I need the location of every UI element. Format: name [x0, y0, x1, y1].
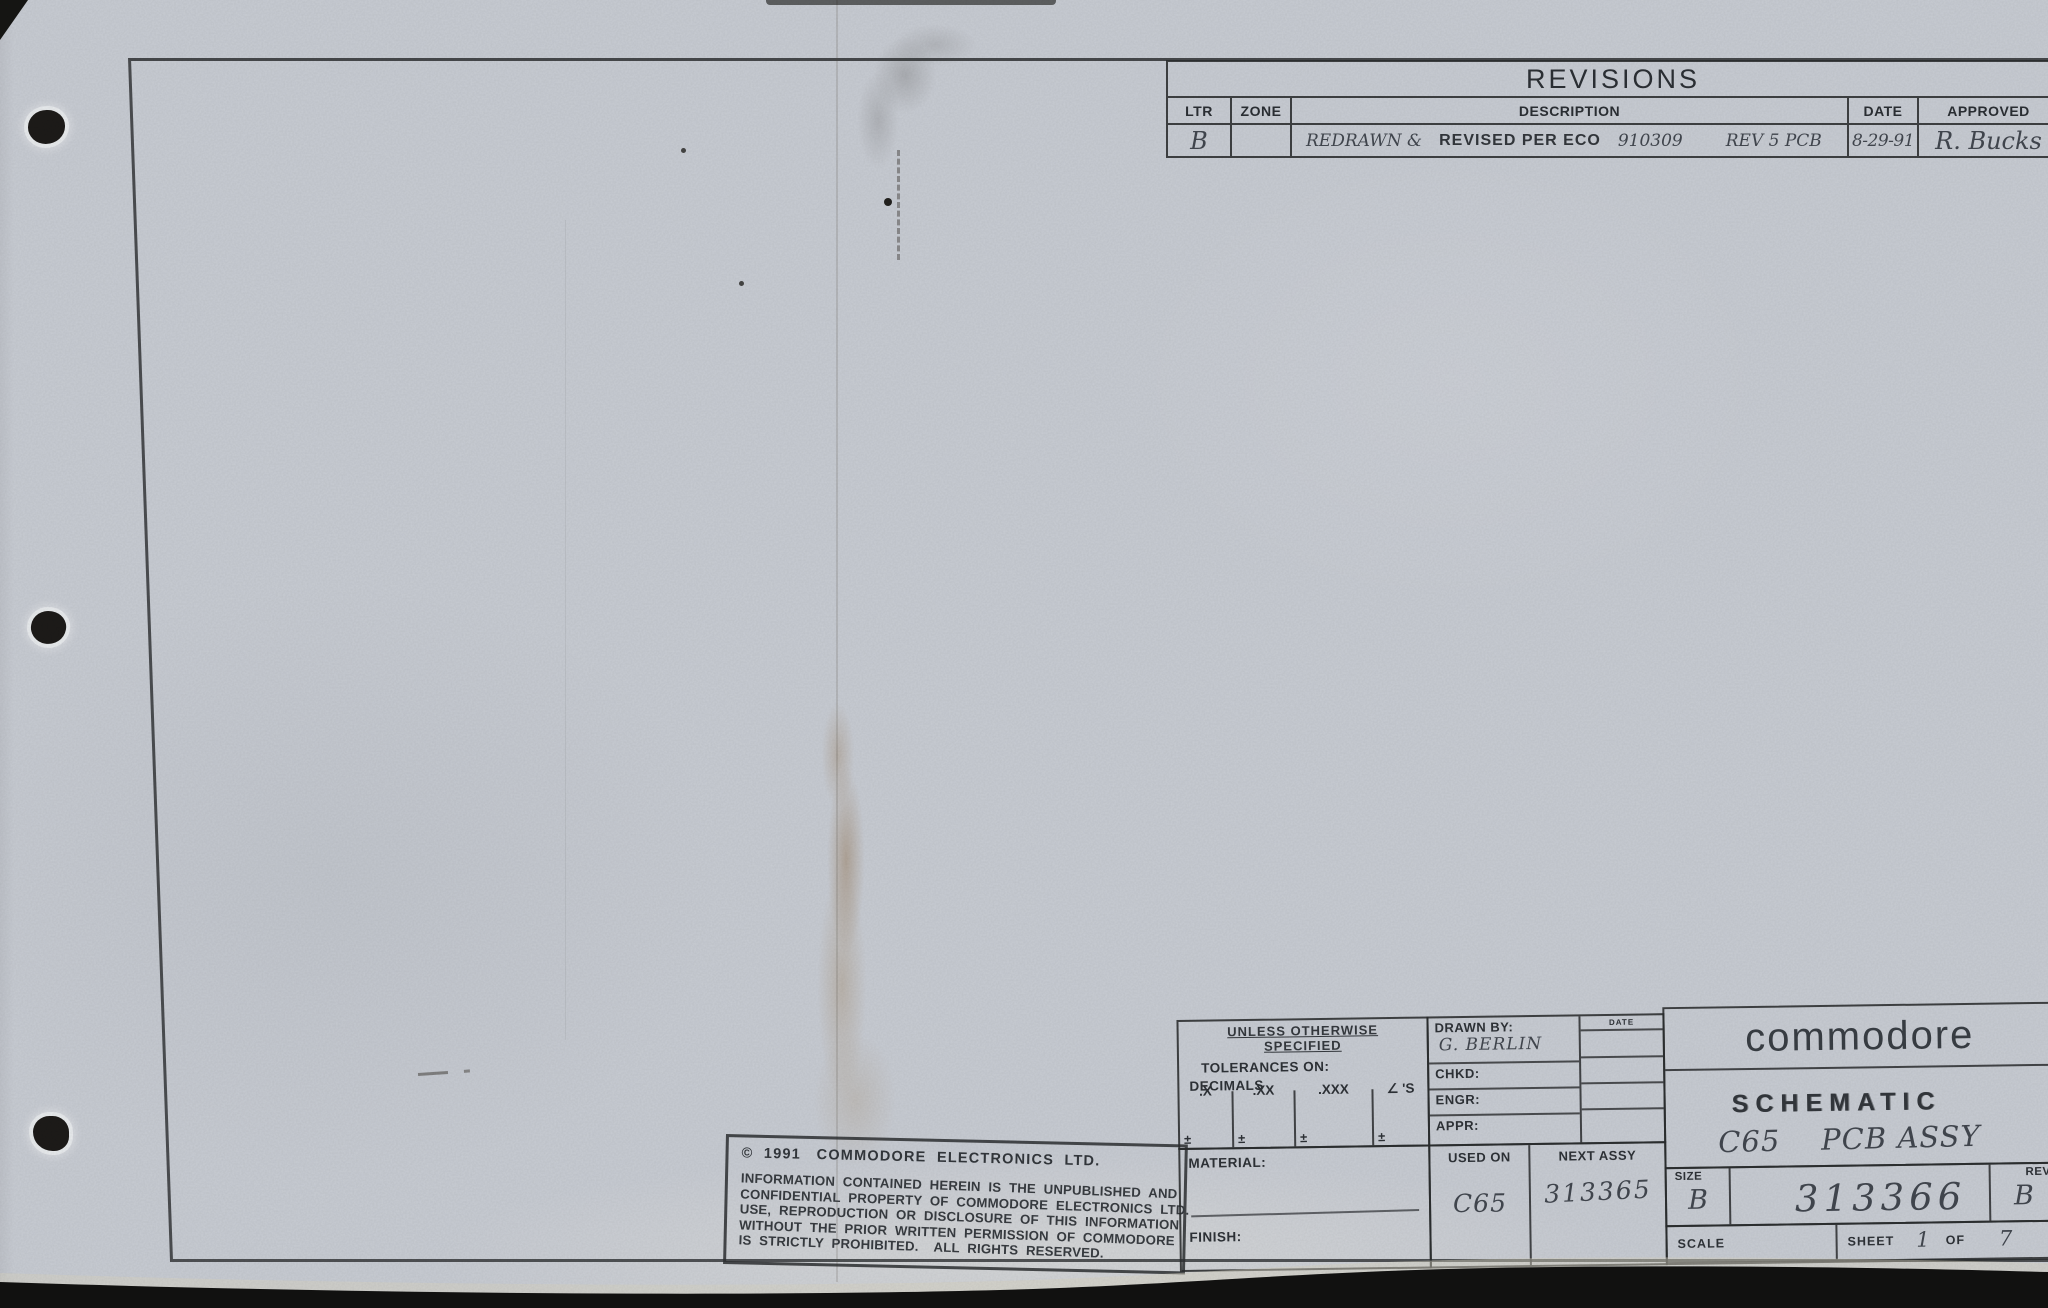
schematic-label: SCHEMATIC — [1731, 1086, 2048, 1120]
header-date: DATE — [1847, 98, 1917, 123]
date-row-line — [1581, 1081, 1663, 1084]
drawn-by-label: DRAWN BY: — [1434, 1019, 1513, 1035]
sheet-number: 1 — [1916, 1228, 1930, 1252]
drawn-by-row: DRAWN BY: G. BERLIN — [1428, 1016, 1579, 1064]
revisions-header-row: LTR ZONE DESCRIPTION DATE APPROVED — [1168, 96, 2048, 123]
chkd-row: CHKD: — [1429, 1062, 1579, 1090]
finish-label: FINISH: — [1189, 1229, 1241, 1245]
copyright-paragraph: INFORMATION CONTAINED HEREIN IS THE UNPU… — [738, 1170, 1184, 1264]
size-value: B — [1667, 1184, 1729, 1216]
used-on-header: USED ON — [1430, 1149, 1528, 1165]
tolerances-on-label: TOLERANCES ON: — [1201, 1058, 1427, 1076]
tolerance-block: UNLESS OTHERWISE SPECIFIED TOLERANCES ON… — [1176, 1016, 1430, 1150]
used-on-cell: USED ON C65 — [1430, 1145, 1530, 1266]
appr-row: APPR: — [1430, 1114, 1580, 1142]
revision-row: B REDRAWN & REVISED PER ECO 910309 REV 5… — [1168, 123, 2048, 156]
ink-speck — [739, 281, 744, 286]
chkd-label: CHKD: — [1435, 1066, 1480, 1082]
drawing-number: 313366 — [1729, 1165, 1990, 1225]
tolerance-col-label: ∠ 'S — [1373, 1081, 1427, 1098]
date-row-line — [1581, 1055, 1663, 1058]
description-hand-suffix: REV 5 PCB — [1726, 131, 1822, 151]
tolerance-columns: .X ± .XX ± .XXX ± ∠ 'S ± — [1179, 1088, 1428, 1147]
of-label: OF — [1946, 1233, 1966, 1247]
scan-corner-artifact — [0, 0, 28, 40]
ink-speck — [681, 148, 686, 153]
plus-minus-mark: ± — [1378, 1129, 1385, 1144]
header-ltr: LTR — [1168, 98, 1230, 123]
used-on-value: C65 — [1431, 1188, 1529, 1218]
header-zone: ZONE — [1230, 98, 1290, 123]
plus-minus-mark: ± — [1184, 1132, 1191, 1147]
tolerance-col-label: .XXX — [1295, 1081, 1371, 1097]
drawing-title: C65 PCB ASSY — [1718, 1117, 2048, 1159]
rev-value: B — [1991, 1180, 2048, 1212]
smudge-dash-marks — [897, 150, 900, 260]
brand-block: commodore SCHEMATIC C65 PCB ASSY — [1662, 1002, 2048, 1169]
tolerance-col-label: .XX — [1233, 1082, 1293, 1098]
next-assy-header: NEXT ASSY — [1530, 1147, 1664, 1164]
material-label: MATERIAL: — [1188, 1152, 1428, 1170]
header-approved: APPROVED — [1917, 98, 2048, 123]
revision-description: REDRAWN & REVISED PER ECO 910309 REV 5 P… — [1290, 125, 1847, 156]
scanned-sheet: REVISIONS LTR ZONE DESCRIPTION DATE APPR… — [0, 0, 2048, 1308]
revision-ltr-value: B — [1168, 125, 1230, 156]
tolerance-cell-angles: ∠ 'S ± — [1371, 1088, 1428, 1145]
revision-zone-value — [1230, 125, 1290, 156]
size-number-block: SIZE B 313366 REV B — [1665, 1162, 2048, 1227]
commodore-logo: commodore — [1664, 1004, 2048, 1071]
revision-date-value: 8-29-91 — [1847, 125, 1917, 156]
scale-sheet-block: SCALE SHEET 1 OF 7 — [1665, 1220, 2048, 1265]
size-cell: SIZE B — [1667, 1168, 1730, 1225]
revisions-table: REVISIONS LTR ZONE DESCRIPTION DATE APPR… — [1166, 60, 2048, 158]
engr-label: ENGR: — [1435, 1092, 1480, 1108]
tolerance-cell-x: .X ± — [1179, 1091, 1232, 1148]
revisions-title: REVISIONS — [1168, 62, 2048, 96]
engr-row: ENGR: — [1429, 1088, 1579, 1116]
scale-sheet-divider — [1835, 1225, 1837, 1260]
revision-approved-value: R. Bucks — [1917, 125, 2048, 156]
copyright-line: © 1991 COMMODORE ELECTRONICS LTD. — [741, 1145, 1184, 1171]
plus-minus-mark: ± — [1238, 1131, 1245, 1146]
copyright-block: © 1991 COMMODORE ELECTRONICS LTD. INFORM… — [723, 1134, 1188, 1274]
size-label: SIZE — [1675, 1171, 1703, 1183]
next-assy-value: 313365 — [1530, 1174, 1665, 1210]
usage-block: USED ON C65 NEXT ASSY 313365 — [1428, 1141, 1668, 1268]
approval-block: DRAWN BY: G. BERLIN CHKD: ENGR: APPR: DA… — [1426, 1013, 1666, 1146]
scale-label: SCALE — [1678, 1236, 1726, 1251]
date-column-header: DATE — [1580, 1017, 1662, 1027]
rev-label: REV — [2025, 1166, 2048, 1178]
tolerance-cell-xxx: .XXX ± — [1293, 1089, 1372, 1146]
description-hand-eco-number: 910309 — [1618, 131, 1683, 151]
sheet-indicator: SHEET 1 OF 7 — [1848, 1232, 2013, 1252]
plus-minus-mark: ± — [1300, 1130, 1307, 1145]
tolerance-col-label: .X — [1179, 1083, 1231, 1099]
appr-label: APPR: — [1436, 1118, 1479, 1134]
approval-date-column: DATE — [1578, 1015, 1664, 1142]
sheet-total: 7 — [1999, 1226, 2013, 1250]
material-underline — [1191, 1209, 1419, 1217]
scan-edge-artifact — [766, 0, 1056, 5]
ink-speck — [884, 198, 892, 206]
punch-hole-bottom — [33, 1116, 69, 1151]
next-assy-cell: NEXT ASSY 313365 — [1528, 1143, 1666, 1265]
header-description: DESCRIPTION — [1290, 98, 1847, 123]
title-block: UNLESS OTHERWISE SPECIFIED TOLERANCES ON… — [1174, 1002, 2048, 1274]
tolerance-cell-xx: .XX ± — [1231, 1090, 1294, 1147]
drawn-by-value: G. BERLIN — [1439, 1033, 1579, 1055]
date-row-line — [1581, 1028, 1663, 1031]
rev-cell: REV B — [1989, 1164, 2048, 1221]
date-row-line — [1582, 1107, 1664, 1110]
sheet-label: SHEET — [1848, 1234, 1895, 1249]
description-hand-prefix: REDRAWN & — [1306, 131, 1422, 151]
material-block: MATERIAL: FINISH: — [1178, 1144, 1432, 1272]
description-typed-text: REVISED PER ECO — [1439, 132, 1601, 150]
tolerance-heading-line2: SPECIFIED — [1179, 1037, 1427, 1055]
